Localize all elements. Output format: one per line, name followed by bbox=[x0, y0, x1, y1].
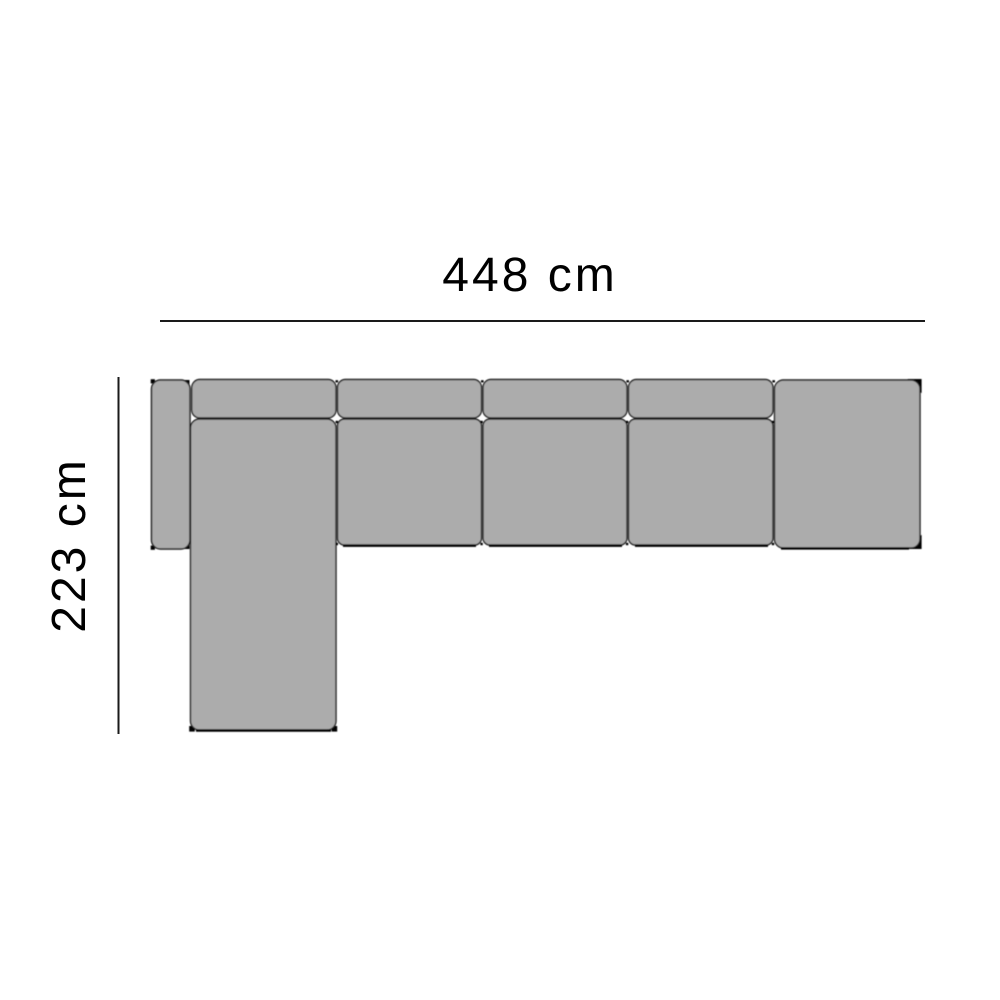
svg-text:448 cm: 448 cm bbox=[442, 249, 617, 302]
svg-text:223 cm: 223 cm bbox=[43, 457, 96, 632]
